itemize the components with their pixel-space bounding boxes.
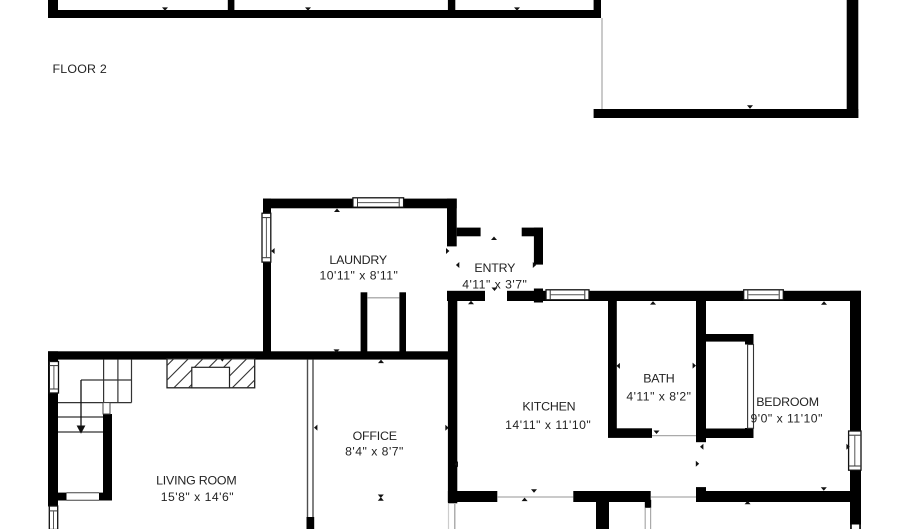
svg-text:4'11" x 8'2": 4'11" x 8'2"	[626, 390, 691, 404]
svg-text:ENTRY: ENTRY	[474, 261, 515, 275]
svg-text:14'11" x 11'10": 14'11" x 11'10"	[505, 418, 591, 432]
svg-text:9'0" x 11'10": 9'0" x 11'10"	[750, 412, 822, 426]
svg-text:10'11" x 8'11": 10'11" x 8'11"	[319, 268, 398, 282]
svg-text:4'11" x 3'7": 4'11" x 3'7"	[462, 277, 527, 291]
svg-text:FLOOR 2: FLOOR 2	[53, 62, 107, 76]
svg-text:KITCHEN: KITCHEN	[522, 399, 575, 413]
svg-text:LAUNDRY: LAUNDRY	[329, 253, 387, 267]
svg-text:BATH: BATH	[643, 371, 674, 385]
svg-text:8'4" x 8'7": 8'4" x 8'7"	[345, 444, 404, 458]
svg-text:LIVING ROOM: LIVING ROOM	[156, 474, 236, 488]
svg-text:OFFICE: OFFICE	[353, 429, 397, 443]
svg-text:BEDROOM: BEDROOM	[756, 395, 819, 409]
svg-text:15'8" x 14'6": 15'8" x 14'6"	[161, 490, 234, 504]
